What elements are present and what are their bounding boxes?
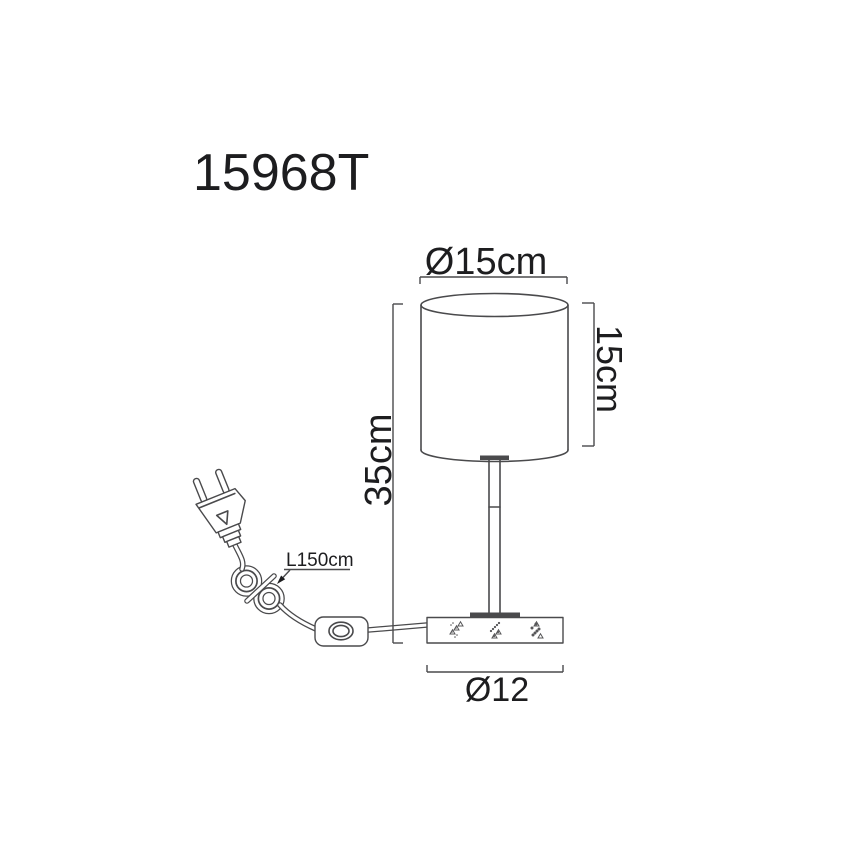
lamp-stem xyxy=(470,456,520,618)
model-number: 15968T xyxy=(193,144,369,202)
base-speckle xyxy=(535,623,538,626)
base-speckle xyxy=(494,626,496,628)
power-plug xyxy=(187,464,259,552)
shade-height-label: 15cm xyxy=(589,325,630,413)
base-speckle xyxy=(451,631,453,633)
base-speckle xyxy=(456,634,458,636)
cable-length-callout xyxy=(277,570,350,585)
base-speckle xyxy=(498,622,500,624)
stem-base-flange xyxy=(470,613,520,618)
lamp-dimension-diagram: 15968T Ø15cm 15cm 35cm L150cm Ø12 xyxy=(0,0,868,868)
lamp-base xyxy=(427,618,563,644)
base-diameter-label: Ø12 xyxy=(465,671,529,709)
plug-pin xyxy=(215,469,230,494)
cable-length-arrow-line xyxy=(283,570,290,578)
shade-top-rim xyxy=(421,294,568,317)
base-speckle xyxy=(496,624,498,626)
inline-switch xyxy=(315,617,368,646)
base-speckle xyxy=(531,627,534,630)
base-speckle xyxy=(450,624,452,626)
base-speckle xyxy=(497,631,499,633)
stem-top-cap xyxy=(480,456,509,461)
cable-length-label: L150cm xyxy=(286,550,354,571)
shade-diameter-label: Ø15cm xyxy=(425,241,547,283)
base-speckle xyxy=(454,636,456,638)
technical-drawing: 15968T Ø15cm 15cm 35cm L150cm Ø12 xyxy=(0,0,868,868)
switch-housing xyxy=(315,617,368,646)
plug-pin xyxy=(193,478,208,503)
base-speckle xyxy=(452,622,454,624)
base-speckle xyxy=(493,635,495,637)
base-speckle xyxy=(538,628,541,631)
base-speckle xyxy=(492,628,494,630)
base-speckle xyxy=(490,630,492,632)
lamp-shade xyxy=(421,294,568,462)
base-body xyxy=(427,618,563,644)
total-height-label: 35cm xyxy=(358,414,400,507)
base-speckle xyxy=(455,627,457,629)
